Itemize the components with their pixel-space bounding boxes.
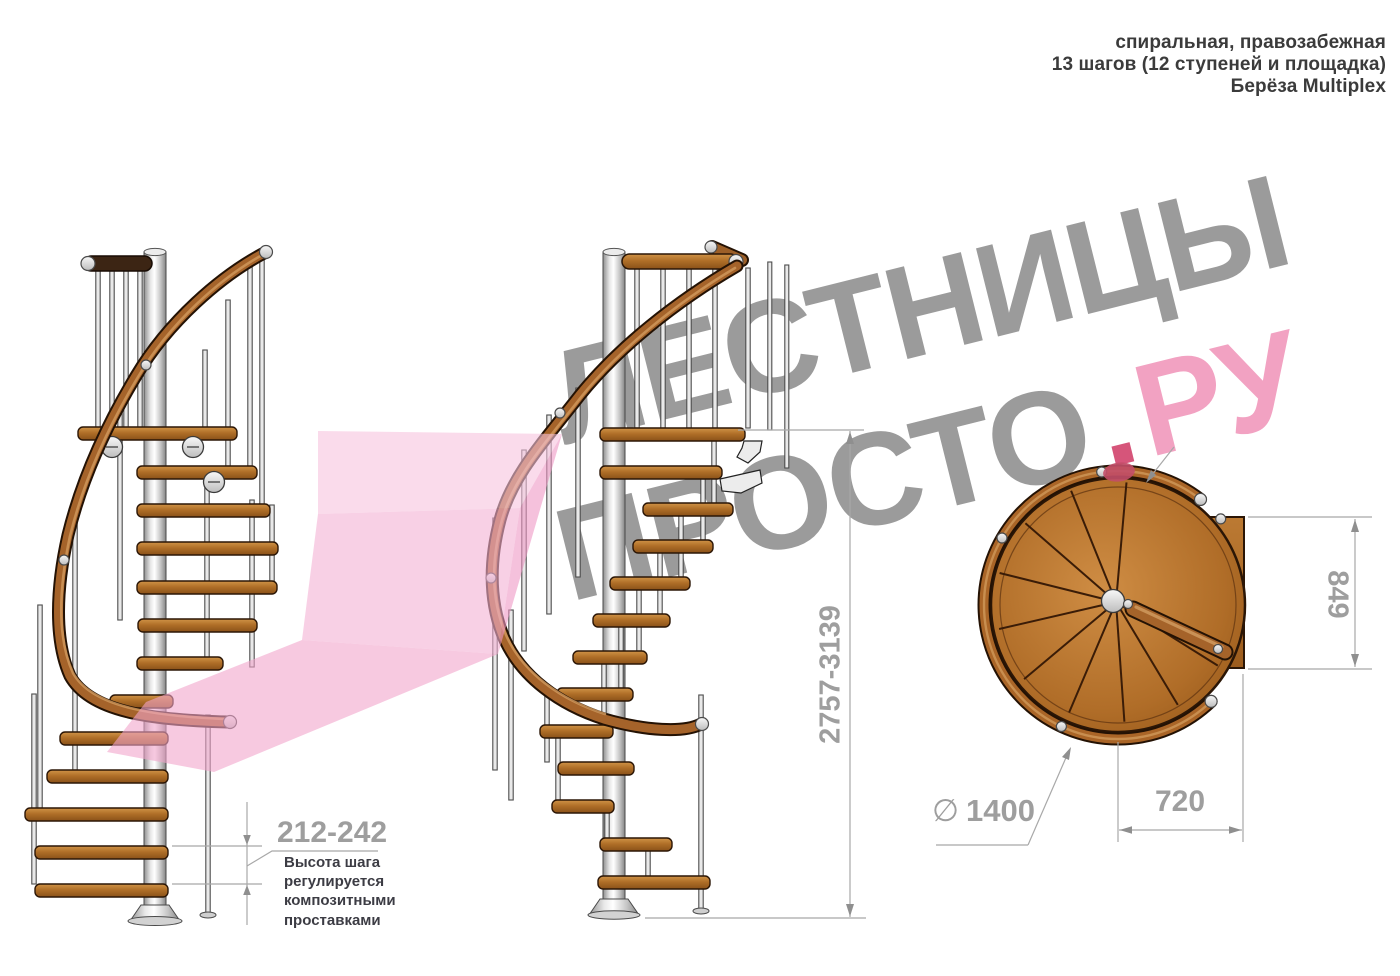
pink-arrow-watermark (0, 0, 1400, 976)
dim-total-height-label: 2757-3139 (815, 595, 848, 755)
arrow-facets (107, 431, 562, 772)
dim-plan-width-label: 720 (1125, 785, 1235, 819)
dim-plan-depth-label: 849 (1321, 547, 1354, 643)
diameter-value: 1400 (966, 793, 1035, 828)
dim-diameter-label: ∅1400 (932, 793, 1035, 829)
drawing-sheet: ЛЕСТНИЦЫ ПРОСТО.РУ (0, 0, 1400, 976)
dim-step-height-label: 212-242 (277, 816, 387, 850)
diameter-symbol: ∅ (932, 793, 959, 828)
step-height-note: Высота шага регулируется композитными пр… (284, 853, 396, 930)
